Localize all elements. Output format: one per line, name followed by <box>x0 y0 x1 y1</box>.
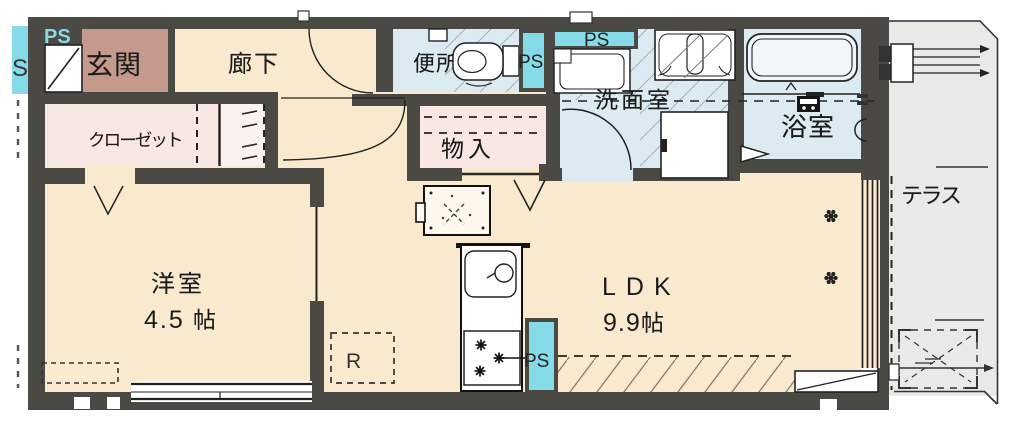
svg-text:PS: PS <box>518 52 543 73</box>
svg-text:PS: PS <box>524 351 549 372</box>
svg-text:4.5: 4.5 <box>144 306 185 334</box>
svg-text:PS: PS <box>44 26 71 48</box>
svg-text:LDK: LDK <box>602 273 681 301</box>
svg-text:PS: PS <box>584 30 609 51</box>
svg-text:9.9: 9.9 <box>603 309 641 337</box>
svg-text:S: S <box>12 55 28 82</box>
svg-text:R: R <box>346 350 361 373</box>
